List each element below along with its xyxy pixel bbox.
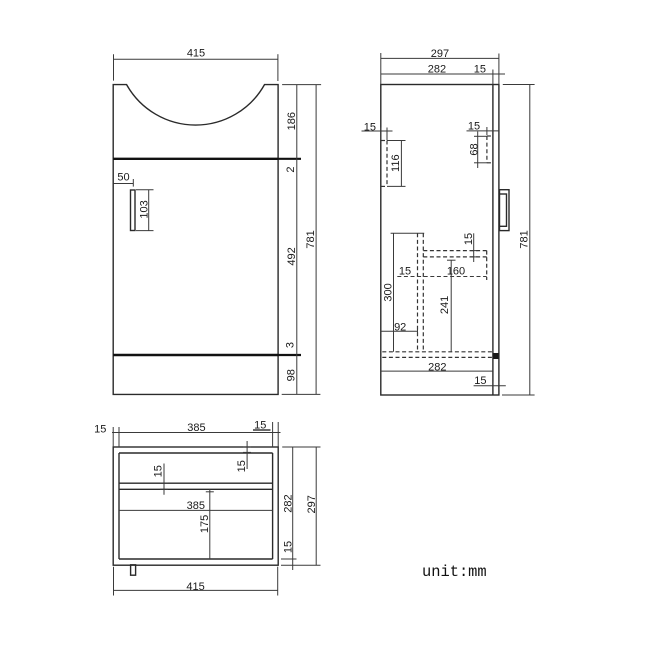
svg-text:241: 241: [439, 296, 451, 314]
svg-text:68: 68: [468, 143, 480, 155]
svg-text:781: 781: [305, 230, 317, 248]
svg-text:282: 282: [428, 361, 446, 373]
svg-text:15: 15: [153, 465, 165, 477]
svg-text:15: 15: [254, 420, 266, 432]
svg-text:415: 415: [186, 581, 204, 593]
svg-text:15: 15: [468, 120, 480, 132]
svg-text:385: 385: [187, 422, 205, 434]
svg-text:116: 116: [390, 154, 402, 172]
svg-text:15: 15: [94, 423, 106, 435]
svg-text:492: 492: [286, 247, 298, 265]
svg-text:186: 186: [286, 112, 298, 130]
svg-text:297: 297: [431, 48, 449, 60]
svg-text:2: 2: [285, 166, 297, 172]
svg-text:50: 50: [117, 171, 129, 183]
svg-text:282: 282: [428, 63, 446, 75]
svg-text:15: 15: [236, 460, 248, 472]
svg-text:98: 98: [286, 369, 298, 381]
svg-text:415: 415: [187, 48, 205, 60]
svg-text:781: 781: [519, 230, 531, 248]
svg-text:385: 385: [187, 500, 205, 512]
svg-text:15: 15: [474, 63, 486, 75]
svg-text:297: 297: [306, 495, 318, 513]
svg-text:15: 15: [399, 265, 411, 277]
svg-text:92: 92: [394, 322, 406, 334]
svg-text:160: 160: [447, 266, 465, 278]
svg-text:300: 300: [383, 283, 395, 301]
svg-text:unit:mm: unit:mm: [422, 563, 487, 581]
svg-text:15: 15: [364, 121, 376, 133]
svg-text:282: 282: [282, 494, 294, 512]
svg-text:103: 103: [139, 200, 151, 218]
svg-text:15: 15: [282, 541, 294, 553]
svg-text:175: 175: [199, 515, 211, 533]
svg-text:3: 3: [285, 342, 297, 348]
svg-text:15: 15: [474, 375, 486, 387]
svg-text:15: 15: [463, 233, 475, 245]
